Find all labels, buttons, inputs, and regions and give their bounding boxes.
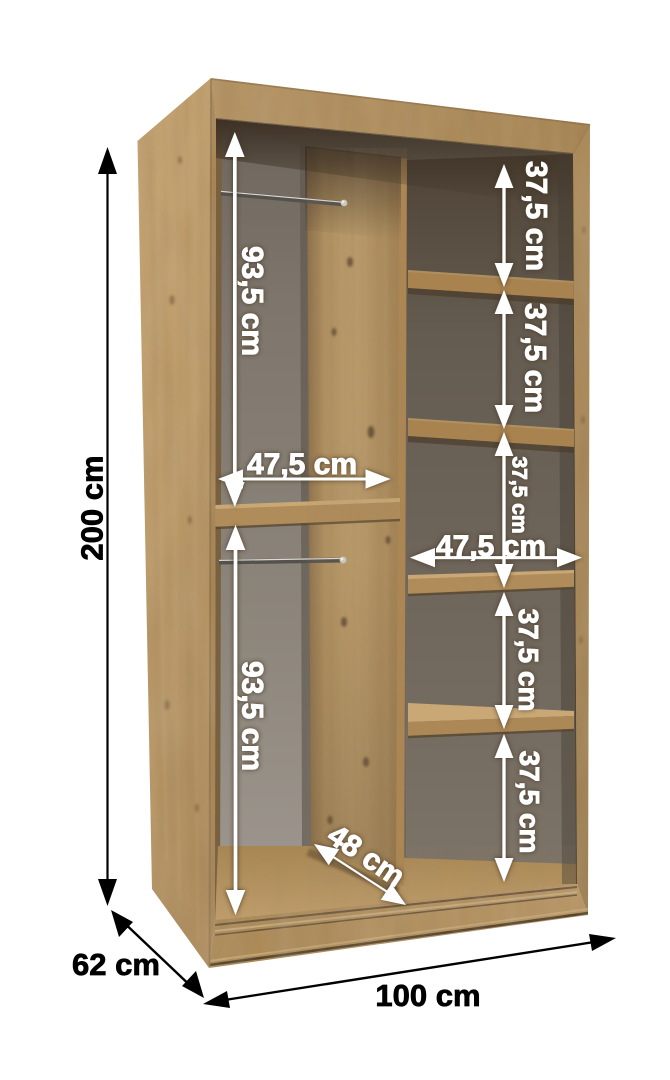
svg-text:93,5 cm: 93,5 cm	[236, 661, 269, 771]
svg-text:200 cm: 200 cm	[75, 455, 110, 560]
svg-text:62 cm: 62 cm	[72, 947, 160, 982]
svg-text:100 cm: 100 cm	[375, 978, 480, 1013]
svg-text:37,5 cm: 37,5 cm	[514, 751, 545, 854]
svg-text:37,5 cm: 37,5 cm	[520, 161, 553, 271]
svg-text:93,5 cm: 93,5 cm	[236, 246, 269, 356]
svg-text:37,5 cm: 37,5 cm	[513, 609, 544, 712]
svg-text:37,5 cm: 37,5 cm	[508, 456, 531, 533]
svg-text:47,5 cm: 47,5 cm	[247, 448, 357, 481]
svg-text:37,5 cm: 37,5 cm	[519, 303, 552, 413]
